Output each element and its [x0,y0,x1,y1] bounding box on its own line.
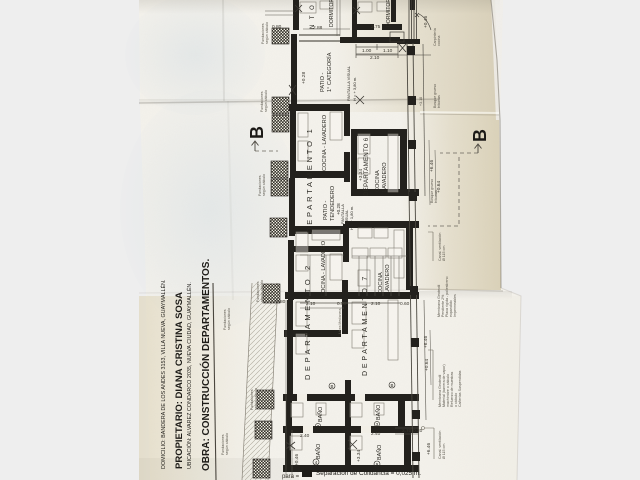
svg-text:2.10: 2.10 [306,301,316,307]
svg-text:BAÑO: BAÑO [375,405,382,420]
svg-text:+0.46: +0.46 [294,454,300,466]
svg-text:DORMITORIO: DORMITORIO [386,0,392,27]
svg-text:Separación de Colidancia = 0,0: Separación de Colidancia = 0,025 m. [316,470,421,477]
svg-text:PATIO -: PATIO - [320,72,326,92]
svg-text:tribunas: tribunas [434,190,438,203]
svg-text:OBRA: CONSTRUCCIÓN DEPARTAMENT: OBRA: CONSTRUCCIÓN DEPARTAMENTOS. [199,259,212,471]
svg-text:1.00: 1.00 [362,48,372,54]
svg-text:H = + 3,80 m.: H = + 3,80 m. [352,77,357,101]
svg-text:según cálculo: según cálculo [225,433,229,455]
svg-text:COCINA - LAVADERO: COCINA - LAVADERO [322,114,328,171]
svg-text:0.60: 0.60 [400,301,410,307]
svg-text:B: B [391,383,394,388]
svg-text:2.10: 2.10 [371,301,381,307]
svg-text:+0.28: +0.28 [301,72,307,84]
svg-text:2.40: 2.40 [371,431,381,437]
svg-text:+6.46: +6.46 [429,160,435,172]
svg-text:DEPARTAMENTO 7: DEPARTAMENTO 7 [362,274,369,376]
svg-text:2.40: 2.40 [300,433,310,439]
svg-text:según cálculo: según cálculo [264,90,268,112]
svg-text:+3.18: +3.18 [419,97,423,106]
svg-text:según cálculo: según cálculo [254,388,258,410]
svg-text:+3.34: +3.34 [356,450,362,462]
svg-text:PATIO -: PATIO - [323,200,329,220]
svg-text:según cálculo: según cálculo [262,174,266,196]
svg-text:0.80: 0.80 [272,24,282,30]
svg-text:PROPIETARIO: DIANA CRISTINA SO: PROPIETARIO: DIANA CRISTINA SOSA [174,292,185,469]
svg-text:LAVADERO: LAVADERO [385,264,391,294]
svg-text:según cálculo: según cálculo [260,280,264,302]
svg-text:B: B [470,129,490,142]
svg-text:B: B [247,126,267,139]
svg-text:H = + 1,80 m.: H = + 1,80 m. [349,206,354,230]
svg-text:DOMICILIO: BANDERA DE LOS ANDE: DOMICILIO: BANDERA DE LOS ANDES 3153, VI… [160,280,167,469]
svg-text:cocina: cocina [437,36,441,46]
svg-text:tribunas: tribunas [437,95,441,108]
svg-text:según cálculo: según cálculo [265,22,269,44]
svg-text:Línea Medianera: Línea Medianera [338,308,342,334]
svg-text:0.80: 0.80 [276,299,286,305]
svg-text:2.10: 2.10 [370,55,380,61]
svg-text:2.75: 2.75 [371,24,381,30]
svg-text:DEPARTAMENTO 2: DEPARTAMENTO 2 [303,262,312,380]
svg-text:LAVADERO: LAVADERO [382,162,388,192]
svg-text:0.20: 0.20 [413,428,423,434]
svg-text:DORMITORIO: DORMITORIO [329,0,335,27]
svg-text:PANTALLA VISUAL: PANTALLA VISUAL [346,65,351,101]
svg-text:BAÑO: BAÑO [376,445,383,460]
svg-text:+0.46: +0.46 [423,16,429,28]
svg-text:DEPARTAMENTO 6: DEPARTAMENTO 6 [363,137,370,196]
svg-text:1.10: 1.10 [383,48,393,54]
svg-text:N T O 1: N T O 1 [310,0,316,29]
svg-text:+6.46: +6.46 [426,443,432,455]
svg-text:Cañerías Suspendidas: Cañerías Suspendidas [458,370,462,407]
svg-text:+0.64: +0.64 [424,359,430,371]
svg-text:Impermeables: Impermeables [453,294,457,317]
svg-text:BAÑO: BAÑO [317,407,324,422]
svg-text:BAÑO: BAÑO [315,444,322,459]
svg-text:+3.34: +3.34 [358,169,364,181]
svg-text:UBICACIÓN: ALVAREZ CONDARCO 20: UBICACIÓN: ALVAREZ CONDARCO 2035, NUEVA … [186,282,193,469]
svg-text:COCINA - LAVADERO: COCINA - LAVADERO [321,240,327,297]
svg-text:2.88: 2.88 [313,25,323,31]
svg-text:según cálculo: según cálculo [227,308,231,330]
svg-text:B: B [331,384,334,389]
svg-text:Ø 115 cm.: Ø 115 cm. [442,245,446,261]
svg-text:COCINA: COCINA [375,170,381,192]
svg-text:DEPARTAMENTO 1: DEPARTAMENTO 1 [305,126,314,233]
svg-text:0.58: 0.58 [337,301,347,307]
svg-text:para =: para = [282,474,300,480]
svg-text:2.70: 2.70 [402,428,412,434]
svg-text:1° CATEGORÍA: 1° CATEGORÍA [326,52,333,92]
svg-text:COCINA: COCINA [378,272,384,294]
svg-text:+6.46: +6.46 [423,336,429,348]
svg-text:Ø 115 cm.: Ø 115 cm. [442,443,446,459]
